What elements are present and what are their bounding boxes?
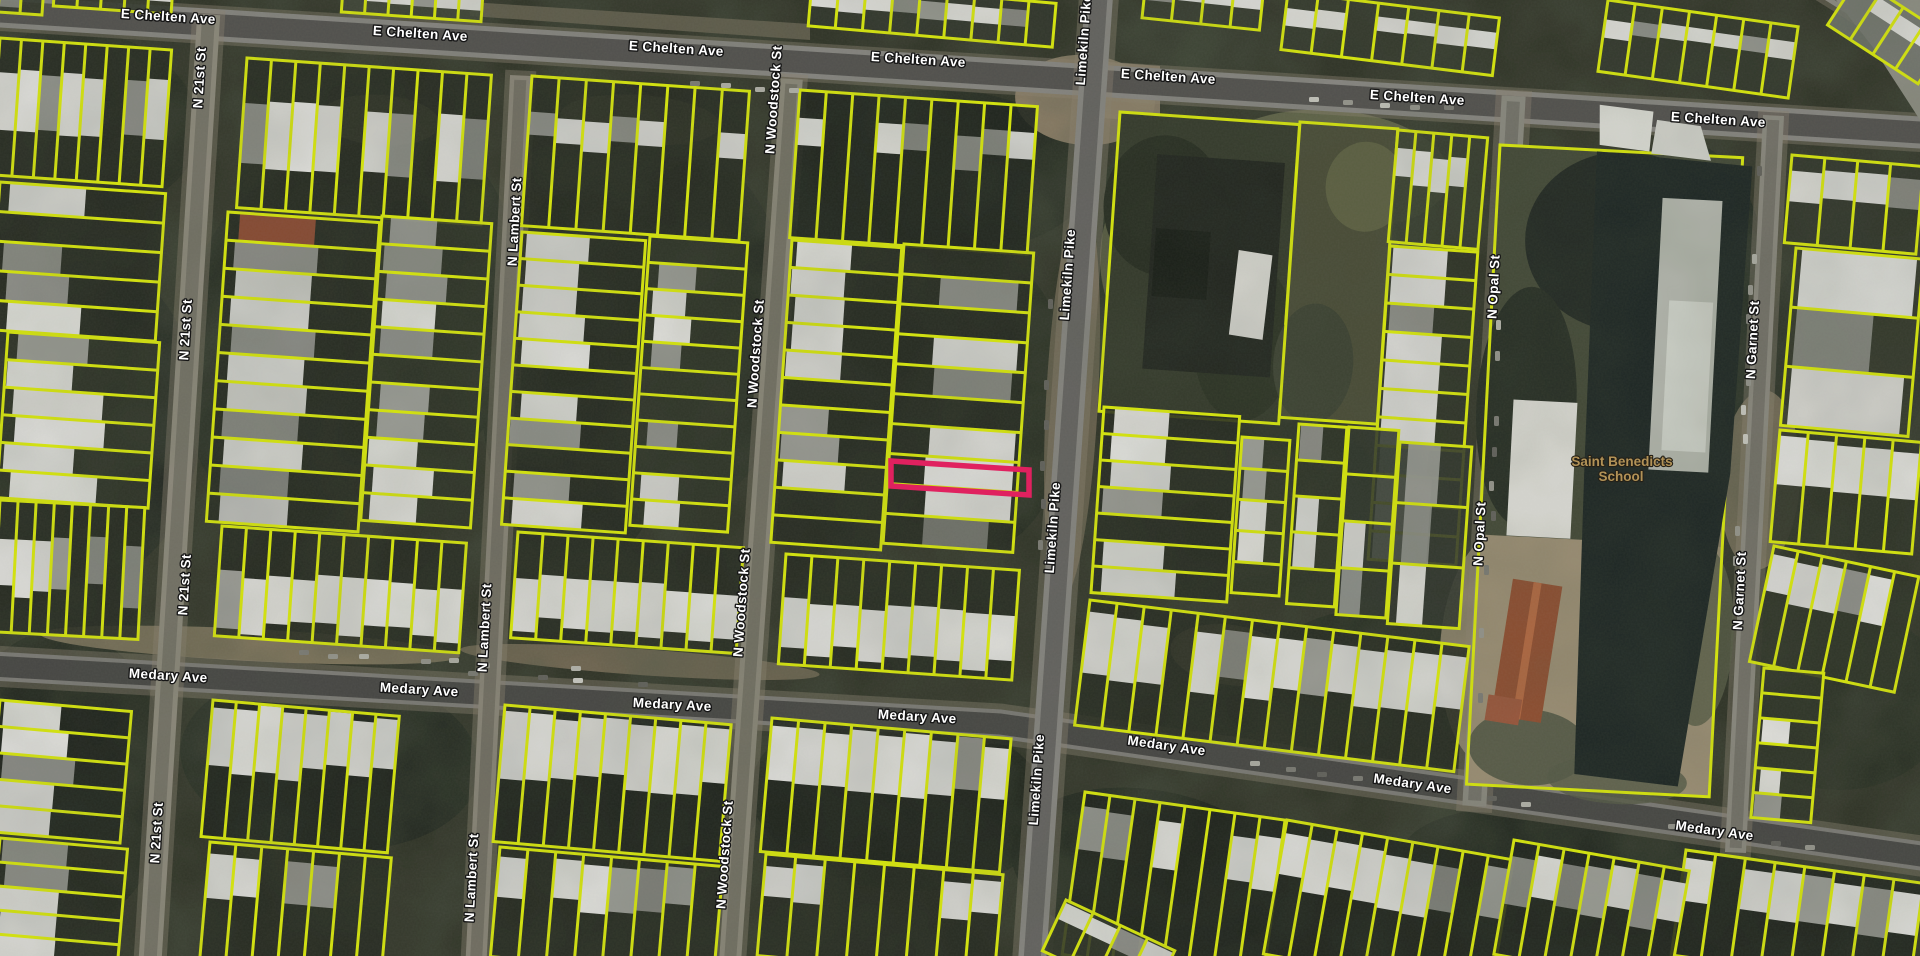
svg-text:Saint Benedicts: Saint Benedicts (1571, 454, 1672, 469)
svg-text:School: School (1598, 469, 1643, 484)
